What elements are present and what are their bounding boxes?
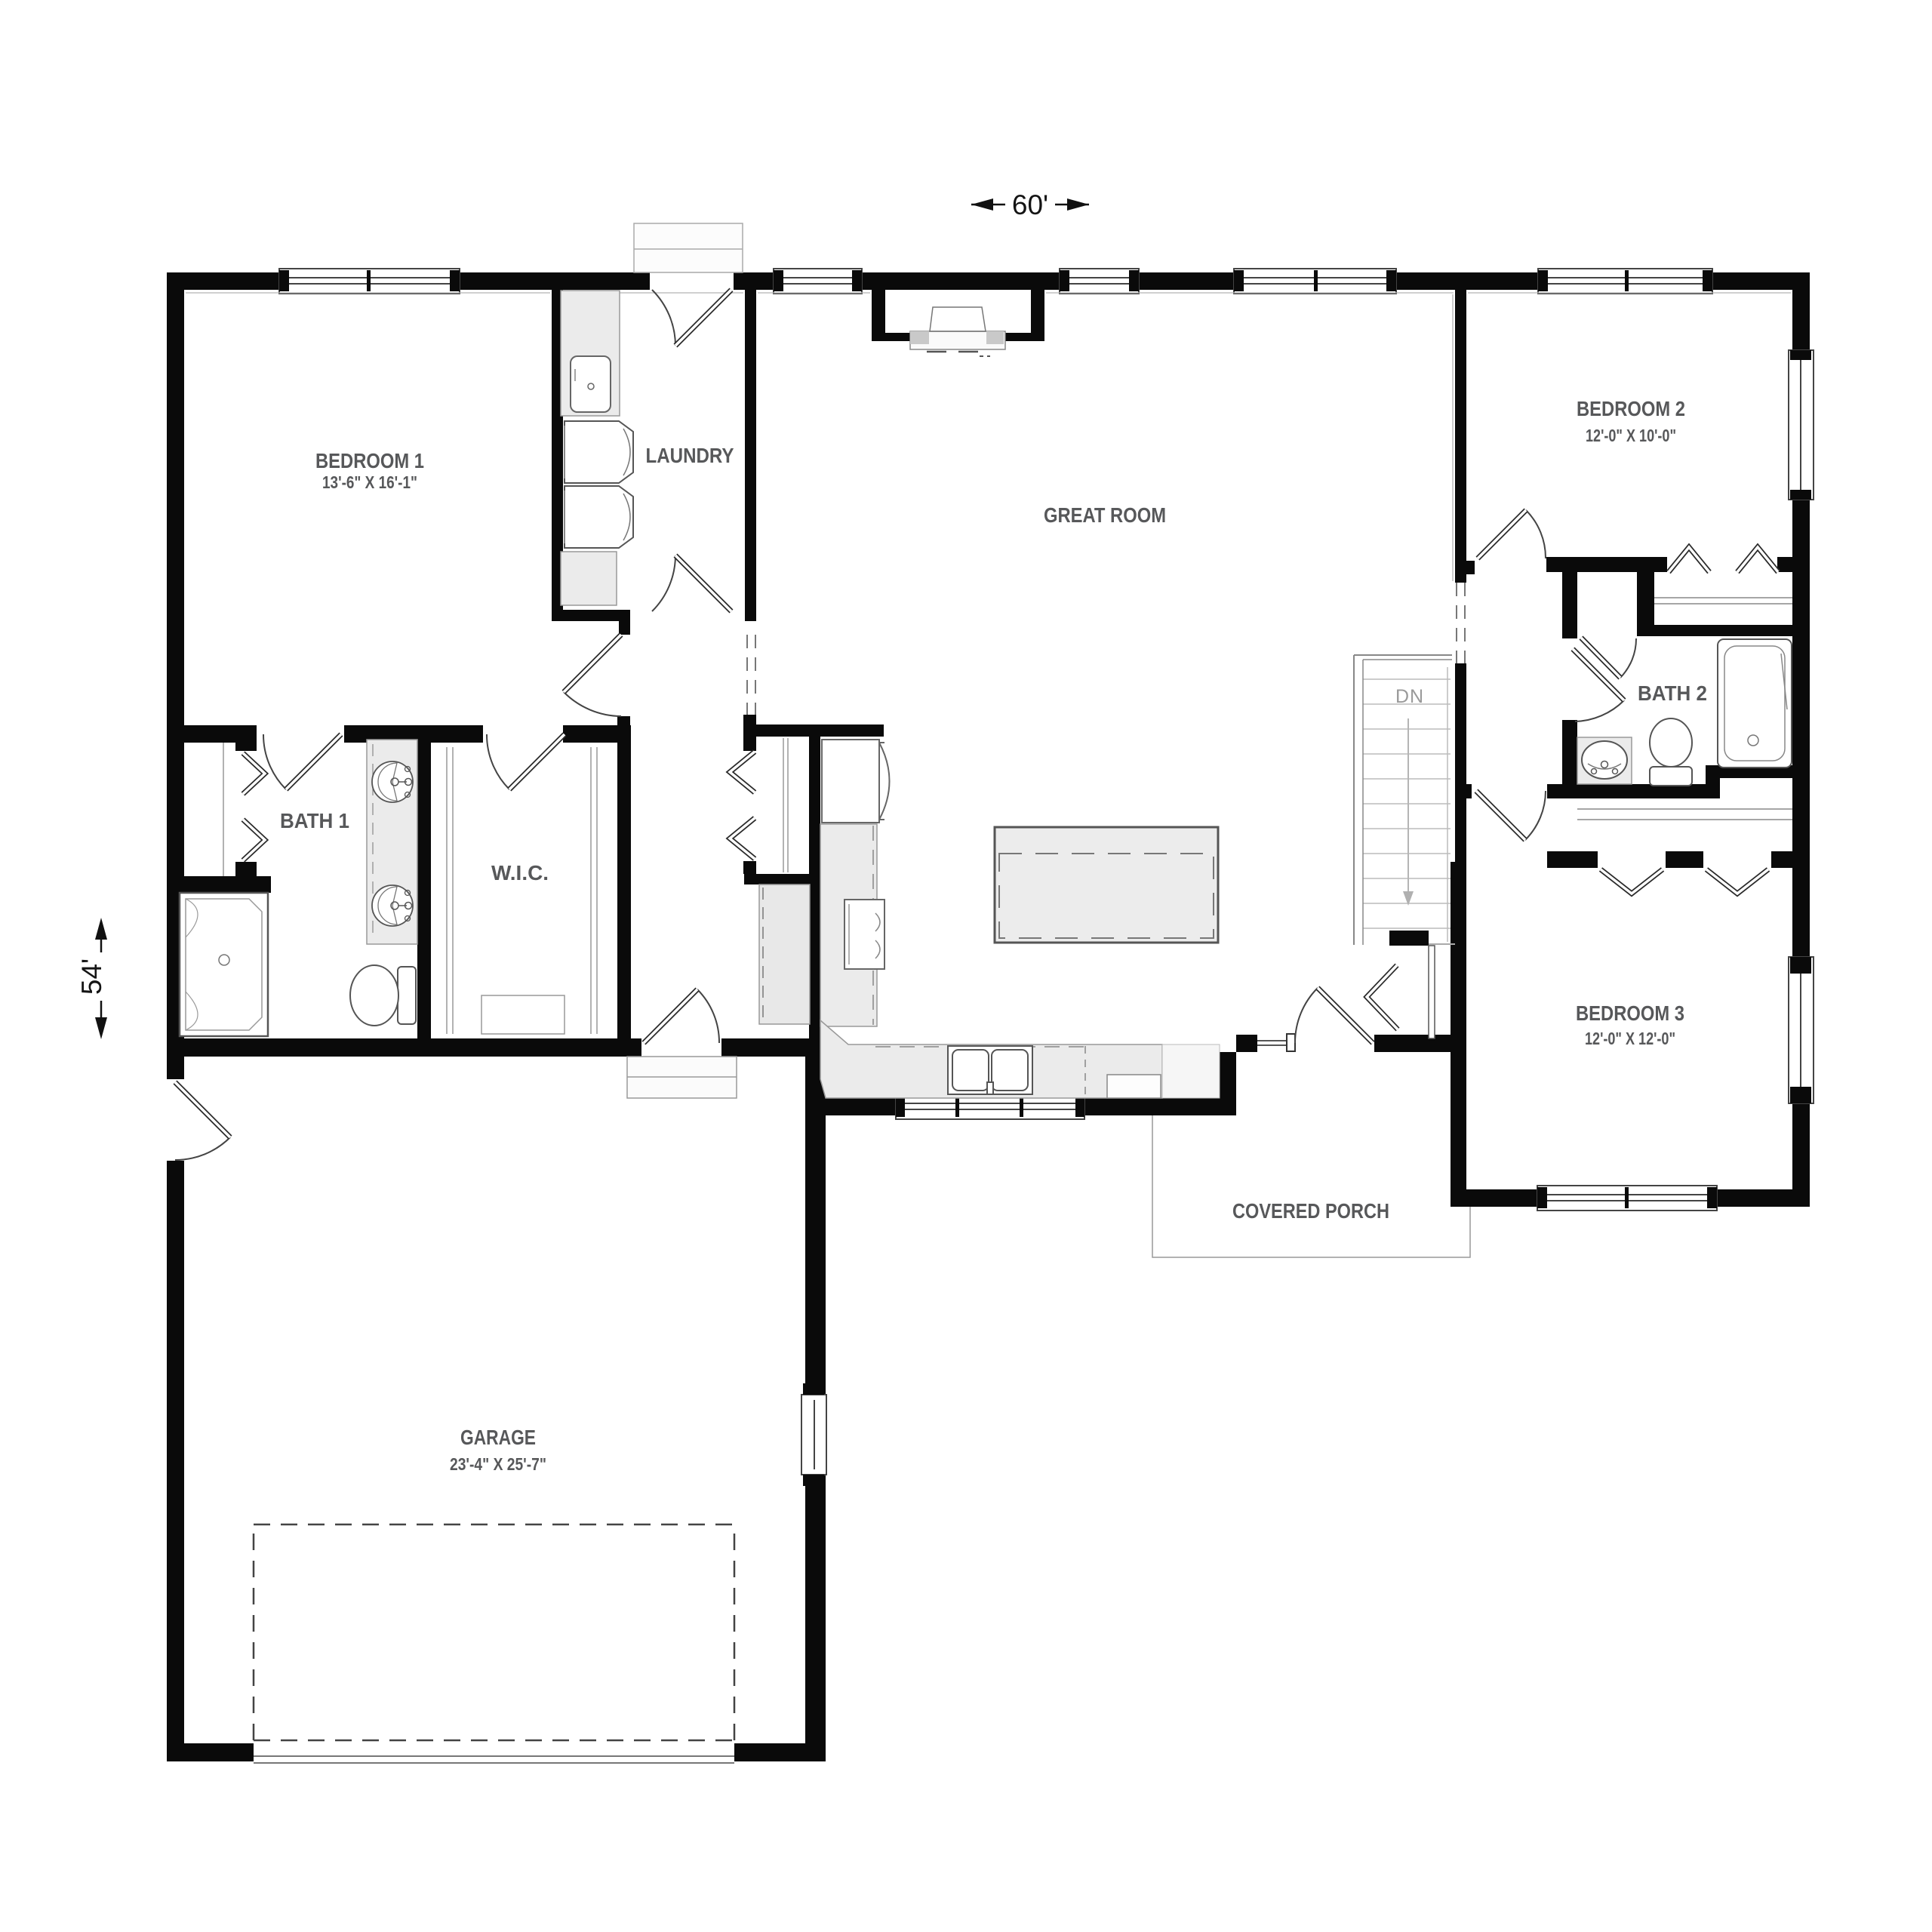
svg-text:BEDROOM 1: BEDROOM 1 — [315, 449, 424, 472]
svg-text:GARAGE: GARAGE — [460, 1426, 536, 1449]
svg-text:LAUNDRY: LAUNDRY — [646, 444, 734, 467]
svg-text:12'-0" X 12'-0": 12'-0" X 12'-0" — [1585, 1029, 1675, 1048]
svg-text:60': 60' — [1012, 189, 1048, 220]
svg-text:COVERED PORCH: COVERED PORCH — [1232, 1199, 1389, 1223]
svg-text:12'-0" X 10'-0": 12'-0" X 10'-0" — [1586, 426, 1676, 445]
svg-text:W.I.C.: W.I.C. — [491, 861, 549, 884]
svg-text:GREAT ROOM: GREAT ROOM — [1044, 503, 1166, 527]
svg-text:23'-4" X 25'-7": 23'-4" X 25'-7" — [450, 1454, 546, 1474]
svg-text:54': 54' — [76, 958, 107, 995]
svg-text:BEDROOM 3: BEDROOM 3 — [1576, 1001, 1684, 1025]
svg-text:BATH 2: BATH 2 — [1638, 681, 1707, 705]
svg-text:DN: DN — [1395, 686, 1424, 707]
svg-text:13'-6" X 16'-1": 13'-6" X 16'-1" — [322, 472, 417, 492]
svg-text:BATH 1: BATH 1 — [280, 809, 349, 832]
svg-text:BEDROOM 2: BEDROOM 2 — [1577, 397, 1685, 420]
